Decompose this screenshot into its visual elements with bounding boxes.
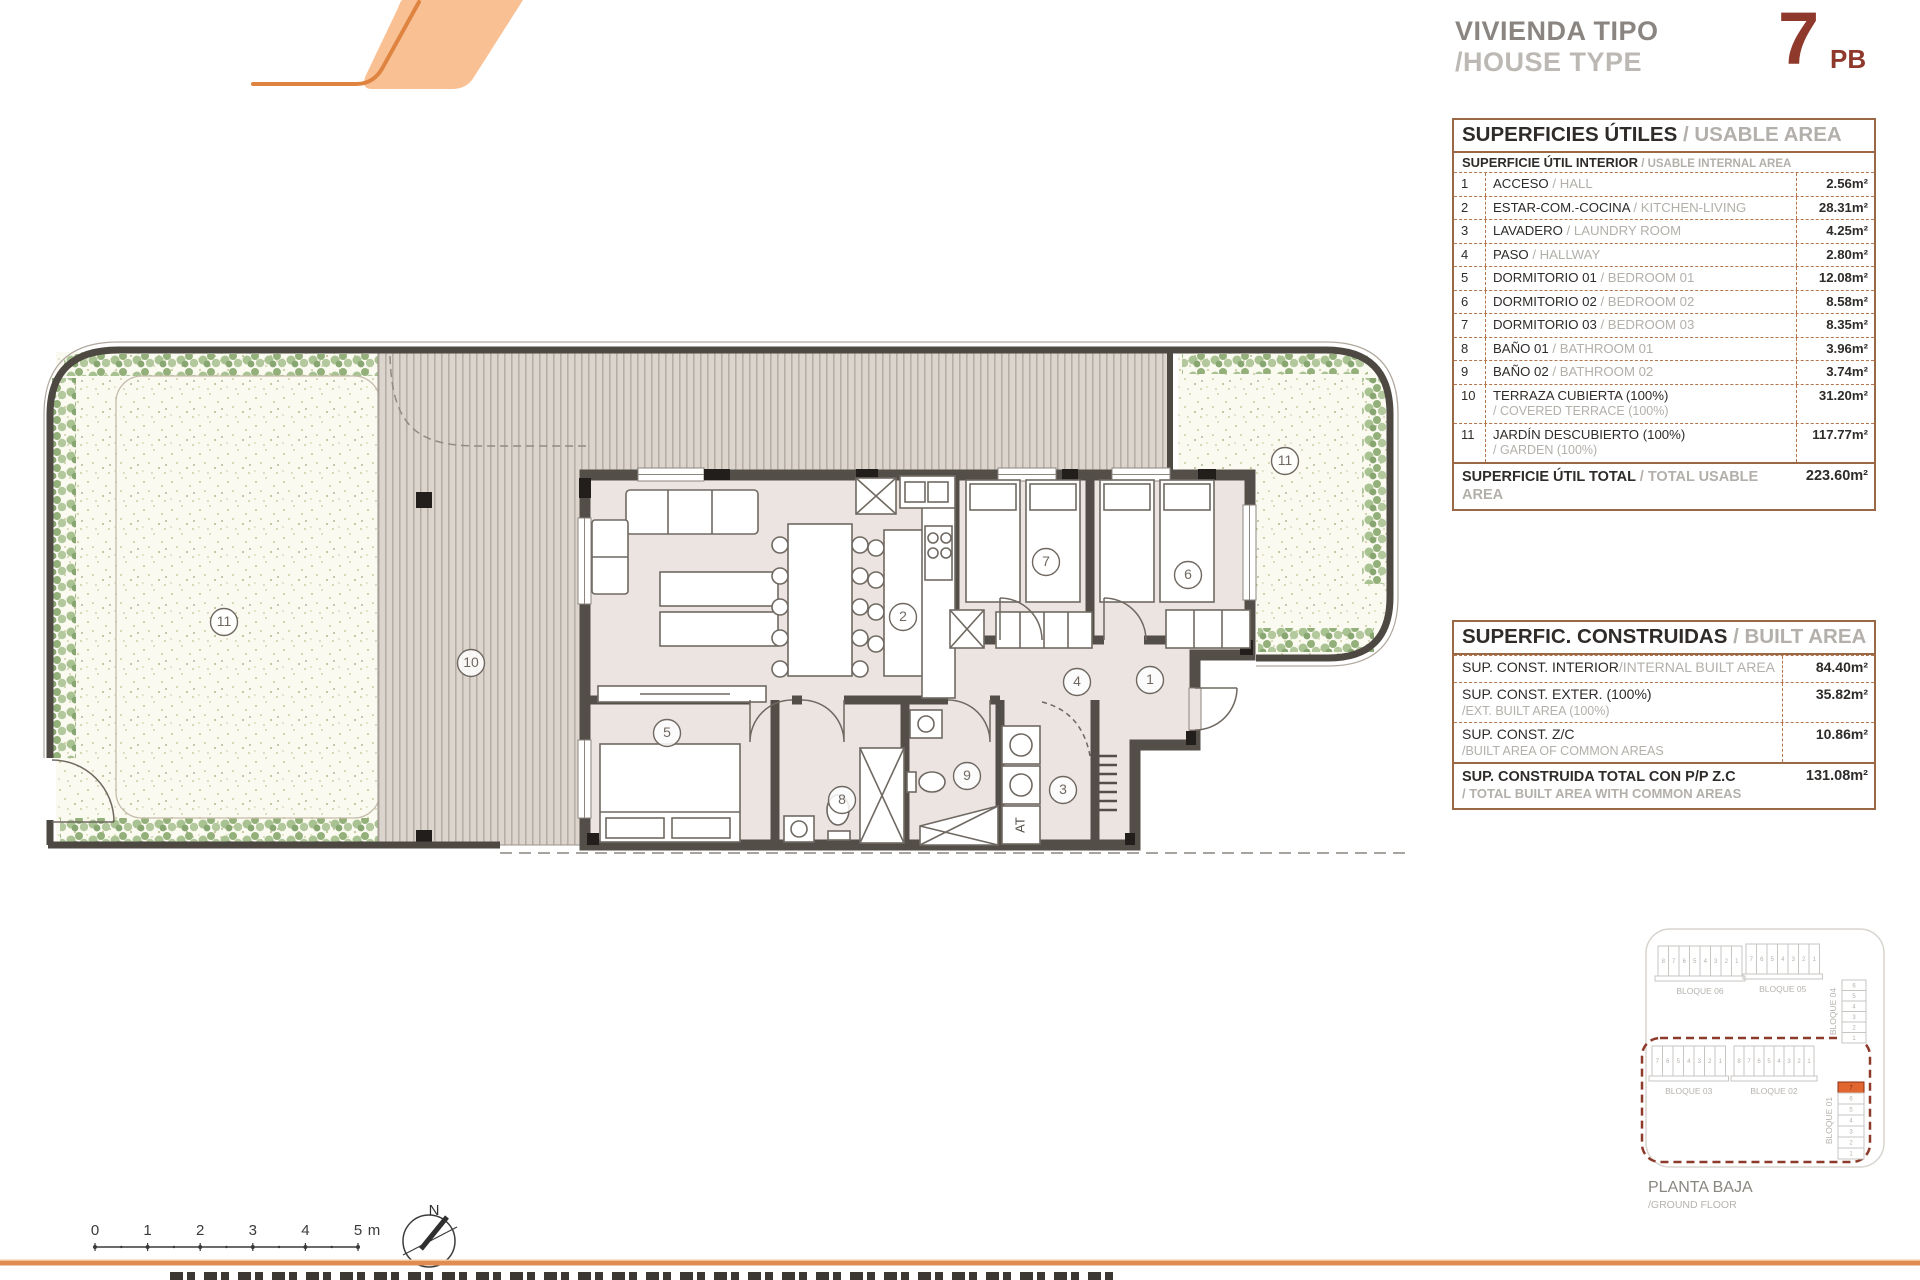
svg-text:5: 5 — [354, 1222, 362, 1239]
row-value: 84.40m² — [1782, 656, 1874, 682]
usable-areas-table: SUPERFICIES ÚTILES / USABLE AREA SUPERFI… — [1452, 118, 1876, 511]
wardrobe — [1166, 610, 1250, 648]
row-value: 3.96m² — [1796, 338, 1874, 361]
cropped-footer-text — [170, 1272, 1115, 1280]
sofa — [626, 490, 758, 534]
row-value: 3.74m² — [1796, 361, 1874, 384]
svg-text:0: 0 — [91, 1222, 99, 1239]
usable-table-header: SUPERFICIES ÚTILES / USABLE AREA — [1454, 120, 1874, 153]
plan-sheet-page: AT 123456789101111 87654321BLOQUE 067654… — [0, 0, 1920, 1280]
left-garden — [52, 352, 380, 844]
house-type-number: 7 — [1778, 2, 1819, 76]
room-label-2: 2 — [890, 604, 917, 631]
svg-text:11: 11 — [1278, 452, 1293, 468]
row-number: 4 — [1454, 244, 1486, 267]
usable-row: 11JARDÍN DESCUBIERTO (100%)/ GARDEN (100… — [1454, 423, 1874, 462]
row-number: 6 — [1454, 291, 1486, 314]
row-number: 11 — [1454, 424, 1486, 462]
svg-text:BLOQUE 01: BLOQUE 01 — [1824, 1097, 1834, 1145]
usable-rows: 1ACCESO / HALL2.56m²2ESTAR-COM.-COCINA /… — [1454, 172, 1874, 462]
hedge-top — [1182, 354, 1368, 374]
svg-text:BLOQUE 05: BLOQUE 05 — [1759, 984, 1807, 994]
usable-row: 3LAVADERO / LAUNDRY ROOM4.25m² — [1454, 219, 1874, 243]
usable-row: 6DORMITORIO 02 / BEDROOM 028.58m² — [1454, 290, 1874, 314]
keyplan-block: 7654321BLOQUE 03 — [1649, 1046, 1729, 1096]
hedge-bottom — [1258, 628, 1374, 652]
scale-bar: 012345m — [91, 1222, 380, 1251]
keyplan-block: 7654321BLOQUE 01 — [1824, 1082, 1864, 1159]
svg-text:4: 4 — [1073, 673, 1081, 689]
row-number: 9 — [1454, 361, 1486, 384]
row-name: PASO / HALLWAY — [1486, 244, 1796, 267]
toilet — [919, 772, 945, 792]
row-name: DORMITORIO 01 / BEDROOM 01 — [1486, 267, 1796, 290]
keyplan-block: 7654321BLOQUE 05 — [1743, 944, 1823, 994]
room-label-5: 5 — [654, 720, 681, 747]
row-value: 31.20m² — [1796, 385, 1874, 423]
svg-text:1: 1 — [143, 1222, 151, 1239]
usable-row: 10TERRAZA CUBIERTA (100%)/ COVERED TERRA… — [1454, 384, 1874, 423]
svg-text:9: 9 — [963, 767, 971, 783]
usable-row: 7DORMITORIO 03 / BEDROOM 038.35m² — [1454, 313, 1874, 337]
svg-text:4: 4 — [301, 1222, 309, 1239]
keyplan-caption-en: /GROUND FLOOR — [1648, 1199, 1737, 1211]
row-name: DORMITORIO 02 / BEDROOM 02 — [1486, 291, 1796, 314]
built-rows: SUP. CONST. INTERIOR/INTERNAL BUILT AREA… — [1454, 655, 1874, 762]
room-label-9: 9 — [954, 763, 981, 790]
hedge-top — [64, 354, 378, 376]
usable-row: 1ACCESO / HALL2.56m² — [1454, 172, 1874, 196]
svg-text:BLOQUE 03: BLOQUE 03 — [1665, 1086, 1713, 1096]
row-name: BAÑO 02 / BATHROOM 02 — [1486, 361, 1796, 384]
at-label: AT — [1012, 817, 1027, 833]
room-label-1: 1 — [1137, 667, 1164, 694]
row-value: 8.35m² — [1796, 314, 1874, 337]
svg-text:BLOQUE 04: BLOQUE 04 — [1828, 988, 1838, 1036]
room-label-11: 11 — [211, 609, 238, 636]
room-label-6: 6 — [1175, 562, 1202, 589]
row-value: 12.08m² — [1796, 267, 1874, 290]
room-label-11: 11 — [1272, 448, 1299, 475]
row-name: SUP. CONST. INTERIOR/INTERNAL BUILT AREA — [1454, 656, 1782, 682]
svg-text:5: 5 — [663, 724, 671, 740]
built-table-header: SUPERFIC. CONSTRUIDAS / BUILT AREA — [1454, 622, 1874, 655]
svg-text:10: 10 — [463, 654, 479, 670]
svg-text:BLOQUE 02: BLOQUE 02 — [1750, 1086, 1798, 1096]
room-label-3: 3 — [1050, 777, 1077, 804]
house-type-suffix: PB — [1830, 44, 1866, 75]
built-row: SUP. CONST. Z/C/BUILT AREA OF COMMON ARE… — [1454, 722, 1874, 762]
built-row: SUP. CONST. INTERIOR/INTERNAL BUILT AREA… — [1454, 655, 1874, 682]
keyplan-block: 654321BLOQUE 04 — [1828, 980, 1866, 1043]
row-value: 2.56m² — [1796, 173, 1874, 196]
row-value: 117.77m² — [1796, 424, 1874, 462]
north-arrow: N — [403, 1202, 457, 1267]
usable-row: 4PASO / HALLWAY2.80m² — [1454, 243, 1874, 267]
toilet-tank — [907, 772, 916, 792]
apartment: AT — [578, 468, 1256, 845]
room-label-7: 7 — [1033, 549, 1060, 576]
built-row: SUP. CONST. EXTER. (100%)/EXT. BUILT ARE… — [1454, 682, 1874, 722]
row-name: JARDÍN DESCUBIERTO (100%)/ GARDEN (100%) — [1486, 424, 1796, 462]
svg-text:6: 6 — [1184, 566, 1192, 582]
svg-text:BLOQUE 06: BLOQUE 06 — [1676, 986, 1724, 996]
row-number: 8 — [1454, 338, 1486, 361]
row-name: LAVADERO / LAUNDRY ROOM — [1486, 220, 1796, 243]
built-total-value: 131.08m² — [1782, 764, 1874, 807]
row-number: 5 — [1454, 267, 1486, 290]
north-label: N — [429, 1202, 440, 1219]
svg-text:11: 11 — [217, 613, 232, 629]
room-label-10: 10 — [458, 650, 485, 677]
row-value: 8.58m² — [1796, 291, 1874, 314]
dining-table — [788, 524, 852, 676]
hedge-left — [52, 378, 76, 758]
stairs-marks — [1099, 756, 1117, 810]
svg-text:3: 3 — [1059, 781, 1067, 797]
hedge-right — [1362, 378, 1386, 584]
row-value: 28.31m² — [1796, 197, 1874, 220]
row-number: 2 — [1454, 197, 1486, 220]
built-areas-table: SUPERFIC. CONSTRUIDAS / BUILT AREA SUP. … — [1452, 620, 1876, 810]
usable-table-subheader: SUPERFICIE ÚTIL INTERIOR / USABLE INTERN… — [1454, 153, 1874, 172]
brand-logo — [253, 0, 523, 89]
row-value: 2.80m² — [1796, 244, 1874, 267]
room-label-4: 4 — [1064, 669, 1091, 696]
row-number: 3 — [1454, 220, 1486, 243]
coffee-table — [660, 572, 778, 606]
usable-row: 2ESTAR-COM.-COCINA / KITCHEN-LIVING28.31… — [1454, 196, 1874, 220]
row-number: 7 — [1454, 314, 1486, 337]
row-value: 4.25m² — [1796, 220, 1874, 243]
svg-text:7: 7 — [1042, 553, 1050, 569]
built-total-row: SUP. CONSTRUIDA TOTAL CON P/P Z.C/ TOTAL… — [1454, 762, 1874, 807]
svg-text:3: 3 — [249, 1222, 257, 1239]
row-name: SUP. CONST. Z/C/BUILT AREA OF COMMON ARE… — [1454, 723, 1782, 762]
row-name: SUP. CONST. EXTER. (100%)/EXT. BUILT ARE… — [1454, 683, 1782, 722]
column — [416, 492, 432, 508]
row-value: 35.82m² — [1782, 683, 1874, 722]
keyplan: 87654321BLOQUE 067654321BLOQUE 05654321B… — [1642, 929, 1884, 1211]
usable-total-row: SUPERFICIE ÚTIL TOTAL / TOTAL USABLE ARE… — [1454, 462, 1874, 509]
usable-row: 9BAÑO 02 / BATHROOM 023.74m² — [1454, 360, 1874, 384]
row-number: 10 — [1454, 385, 1486, 423]
svg-text:m: m — [368, 1222, 381, 1239]
kitchen-counter — [922, 476, 955, 698]
keyplan-caption: PLANTA BAJA — [1648, 1179, 1753, 1196]
usable-row: 8BAÑO 01 / BATHROOM 013.96m² — [1454, 337, 1874, 361]
page-footer-line — [0, 1261, 1920, 1266]
row-name: TERRAZA CUBIERTA (100%)/ COVERED TERRACE… — [1486, 385, 1796, 423]
row-name: ACCESO / HALL — [1486, 173, 1796, 196]
svg-text:1: 1 — [1146, 671, 1154, 687]
page-footer-line-light — [0, 1260, 1920, 1262]
usable-total-value: 223.60m² — [1782, 464, 1874, 509]
keyplan-block: 87654321BLOQUE 02 — [1731, 1046, 1817, 1096]
svg-text:2: 2 — [196, 1222, 204, 1239]
row-number: 1 — [1454, 173, 1486, 196]
room-label-8: 8 — [829, 787, 856, 814]
keyplan-block: 87654321BLOQUE 06 — [1655, 946, 1745, 996]
row-value: 10.86m² — [1782, 723, 1874, 762]
usable-row: 5DORMITORIO 01 / BEDROOM 0112.08m² — [1454, 266, 1874, 290]
svg-text:2: 2 — [899, 608, 907, 624]
svg-text:8: 8 — [838, 791, 846, 807]
row-name: BAÑO 01 / BATHROOM 01 — [1486, 338, 1796, 361]
row-name: DORMITORIO 03 / BEDROOM 03 — [1486, 314, 1796, 337]
row-name: ESTAR-COM.-COCINA / KITCHEN-LIVING — [1486, 197, 1796, 220]
